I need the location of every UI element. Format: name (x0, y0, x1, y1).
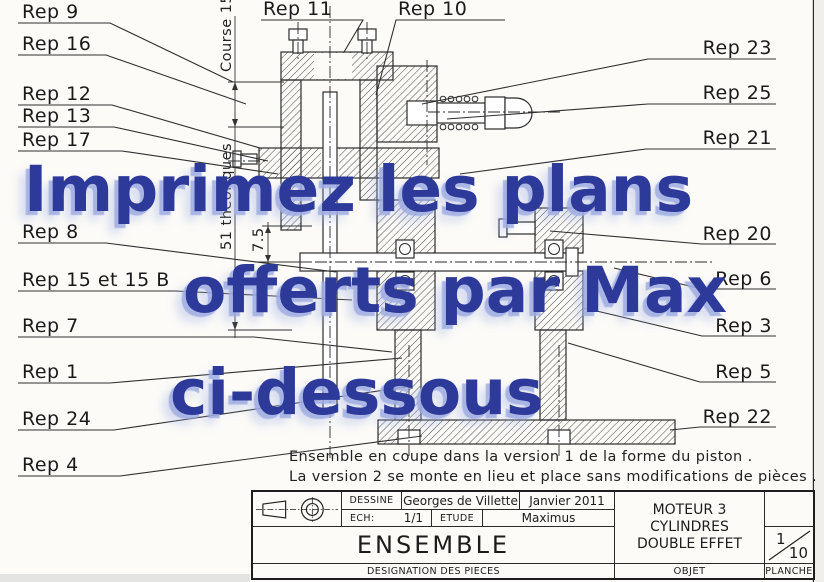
callout-label: Rep 22 (703, 406, 772, 428)
date-value: Janvier 2011 (520, 492, 615, 510)
etude-label: ETUDE (432, 510, 483, 527)
valve-seat (407, 101, 437, 125)
dimension-course-15: Course 15 (219, 0, 235, 72)
watermark-line-1: Imprimez les plans (24, 158, 693, 221)
caption-line-1: Ensemble en coupe dans la version 1 de l… (289, 448, 817, 468)
sheet-number: 1 (776, 530, 786, 548)
callout-rep-11: Rep 11 (261, 0, 363, 52)
designation-label: DESIGNATION DES PIECES (253, 564, 615, 578)
ech-label: ECH: (350, 513, 375, 524)
etude-value: Maximus (483, 510, 615, 527)
sheet-total: 10 (789, 544, 808, 562)
empty-cell (765, 492, 813, 527)
callout-label: Rep 1 (22, 361, 79, 383)
object-line-2: CYLINDRES (650, 519, 729, 536)
callout-label: Rep 12 (22, 83, 91, 105)
caption-line-2: La version 2 se monte en lieu et place s… (289, 468, 817, 488)
callout-label: Rep 24 (22, 408, 91, 430)
scan-smudge (0, 574, 250, 582)
valve-stem (437, 103, 485, 123)
callout-label: Rep 4 (22, 454, 79, 476)
callout-label: Rep 16 (22, 33, 91, 55)
ech-value: 1/1 (404, 511, 423, 525)
callout-rep-22: Rep 22 (670, 406, 776, 430)
assembly-title: ENSEMBLE (253, 527, 615, 564)
callout-label: Rep 10 (398, 0, 467, 20)
callout-label: Rep 25 (703, 82, 772, 104)
callout-label: Rep 21 (703, 127, 772, 149)
callout-label: Rep 20 (703, 223, 772, 245)
scale-cell: ECH: 1/1 (342, 510, 432, 527)
watermark-line-2: offerts par Max (183, 259, 727, 322)
drawing-caption: Ensemble en coupe dans la version 1 de l… (289, 448, 817, 487)
callout-label: Rep 9 (22, 1, 79, 23)
dessine-label: DESSINE (342, 492, 402, 510)
callout-label: Rep 5 (715, 361, 772, 383)
callout-label: Rep 13 (22, 105, 91, 127)
callout-rep-5: Rep 5 (568, 343, 776, 383)
first-angle-projection-icon (253, 492, 341, 527)
title-block: DESSINE Georges de Villette Janvier 2011… (251, 490, 815, 580)
dimension-7-5: 7.5 (251, 227, 267, 252)
object-title: MOTEUR 3 CYLINDRES DOUBLE EFFET (615, 492, 765, 564)
projection-symbol-cell (253, 492, 342, 527)
object-line-3: DOUBLE EFFET (637, 536, 742, 553)
watermark-line-3: ci-dessous (170, 361, 544, 424)
callout-label: Rep 7 (22, 315, 79, 337)
scan-edge (814, 0, 824, 582)
object-line-1: MOTEUR 3 (653, 502, 727, 519)
sheet-fraction-cell: 1 10 (765, 527, 813, 564)
callout-label: Rep 17 (22, 129, 91, 151)
callout-label: Rep 15 et 15 B (22, 269, 170, 291)
callout-label: Rep 23 (703, 37, 772, 59)
objet-label: OBJET (615, 564, 765, 578)
planche-label: PLANCHE (765, 564, 813, 578)
callout-label: Rep 11 (263, 0, 332, 20)
dessine-value: Georges de Villette (402, 492, 520, 510)
callout-rep-20: Rep 20 (550, 223, 776, 245)
bore-mask (314, 53, 352, 79)
valve-nut (485, 97, 505, 129)
scanned-drawing-page: Course 15 51 théoriques 7.5 Rep 11 Rep 1… (0, 0, 824, 582)
